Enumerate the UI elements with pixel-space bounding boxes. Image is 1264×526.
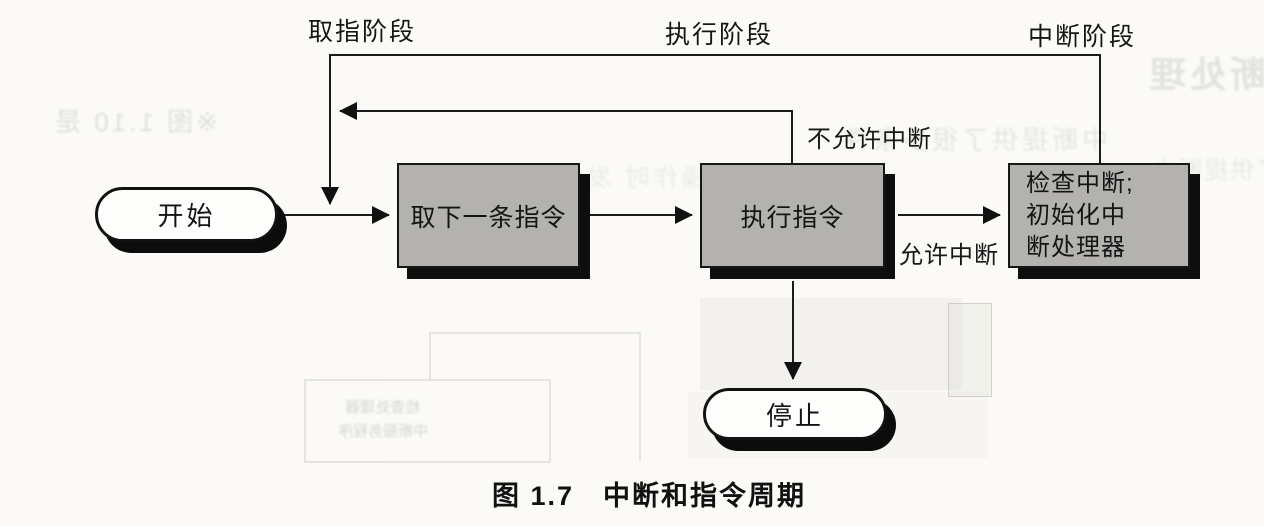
scanned-book-page: 中断处理 ※图 1.10 是 中断提供了很多条件 完成一次I/O操作时 发生 了… — [0, 0, 1264, 526]
interrupt-phase-label: 中断阶段 — [1028, 17, 1136, 53]
execute-instruction-label: 执行指令 — [740, 198, 844, 234]
halt-node: 停止 — [703, 388, 887, 440]
start-node-label: 开始 — [157, 196, 215, 233]
fetch-phase-label: 取指阶段 — [308, 12, 416, 48]
interrupt-check-node: 检查中断; 初始化中 断处理器 — [1008, 163, 1190, 268]
interrupt-check-label: 检查中断; 初始化中 断处理器 — [1026, 168, 1134, 264]
start-node: 开始 — [95, 187, 278, 242]
fetch-instruction-node: 取下一条指令 — [397, 163, 580, 268]
interrupts-enabled-label: 允许中断 — [899, 235, 999, 270]
figure-caption: 图 1.7 中断和指令周期 — [0, 474, 1264, 513]
interrupts-disabled-label: 不允许中断 — [807, 119, 932, 154]
halt-node-label: 停止 — [766, 396, 824, 433]
fetch-instruction-label: 取下一条指令 — [410, 198, 566, 234]
edge-interrupts-disabled — [340, 111, 792, 164]
execute-instruction-node: 执行指令 — [700, 163, 885, 268]
execute-phase-label: 执行阶段 — [665, 15, 773, 51]
